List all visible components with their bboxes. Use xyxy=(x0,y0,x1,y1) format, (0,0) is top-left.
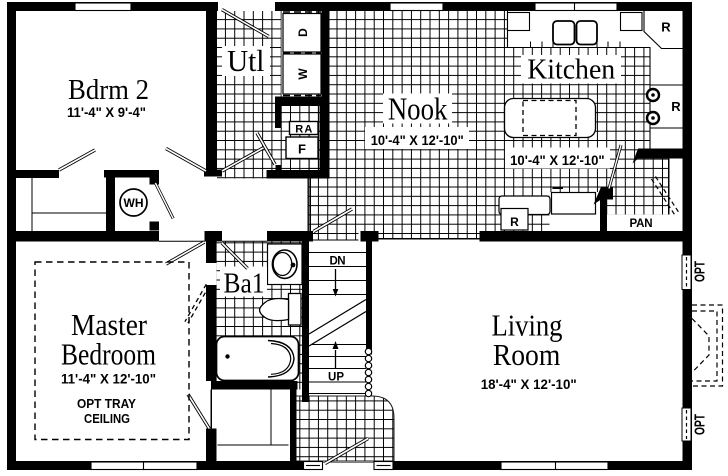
svg-text:Bdrm 2: Bdrm 2 xyxy=(68,75,149,106)
svg-text:Utl: Utl xyxy=(227,43,265,78)
svg-text:Ba1: Ba1 xyxy=(224,268,265,300)
svg-text:R: R xyxy=(661,20,671,35)
svg-text:10'-4" X 12'-10": 10'-4" X 12'-10" xyxy=(371,133,464,148)
svg-text:OPT TRAY: OPT TRAY xyxy=(77,397,137,411)
svg-text:D: D xyxy=(296,28,310,37)
svg-text:Nook: Nook xyxy=(388,91,448,127)
svg-text:F: F xyxy=(298,142,306,157)
svg-text:R: R xyxy=(510,215,519,229)
svg-text:Room: Room xyxy=(493,337,561,372)
svg-text:OPT: OPT xyxy=(693,261,709,282)
svg-text:11'-4" X 12'-10": 11'-4" X 12'-10" xyxy=(61,372,156,387)
svg-text:WH: WH xyxy=(124,196,144,210)
svg-text:OPT: OPT xyxy=(693,414,709,435)
svg-text:UP: UP xyxy=(328,371,344,383)
svg-text:Bedroom: Bedroom xyxy=(61,337,156,372)
svg-text:PAN: PAN xyxy=(630,218,653,230)
svg-text:18'-4" X 12'-10": 18'-4" X 12'-10" xyxy=(481,377,577,392)
svg-text:10'-4" X 12'-10": 10'-4" X 12'-10" xyxy=(510,153,605,168)
svg-text:11'-4" X 9'-4": 11'-4" X 9'-4" xyxy=(67,105,146,120)
svg-text:CEILING: CEILING xyxy=(84,412,130,426)
svg-text:W: W xyxy=(296,68,310,80)
svg-text:Kitchen: Kitchen xyxy=(527,55,615,86)
svg-text:DN: DN xyxy=(330,255,346,267)
svg-text:RA: RA xyxy=(295,123,312,135)
svg-text:R: R xyxy=(671,99,681,114)
